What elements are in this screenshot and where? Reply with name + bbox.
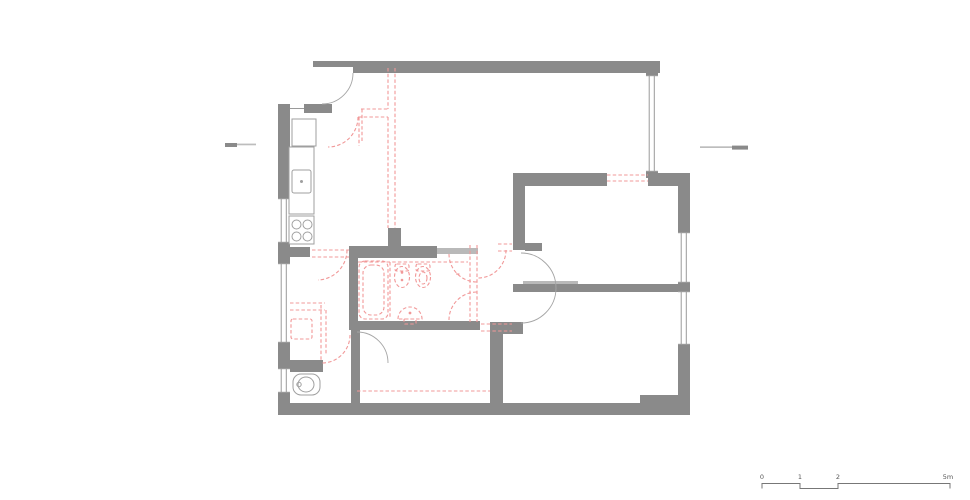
walls-layer [278, 61, 690, 415]
floor-plan-drawing: 0125m [0, 0, 970, 500]
scale-label: 2 [836, 473, 840, 481]
scale-label: 5m [943, 473, 953, 481]
scale-bar: 0125m [760, 473, 953, 489]
scale-label: 1 [798, 473, 802, 481]
windows-layer [278, 75, 690, 393]
demolition-layer [290, 68, 648, 391]
scale-label: 0 [760, 473, 764, 481]
floor-plan-page: 0125m [0, 0, 970, 500]
